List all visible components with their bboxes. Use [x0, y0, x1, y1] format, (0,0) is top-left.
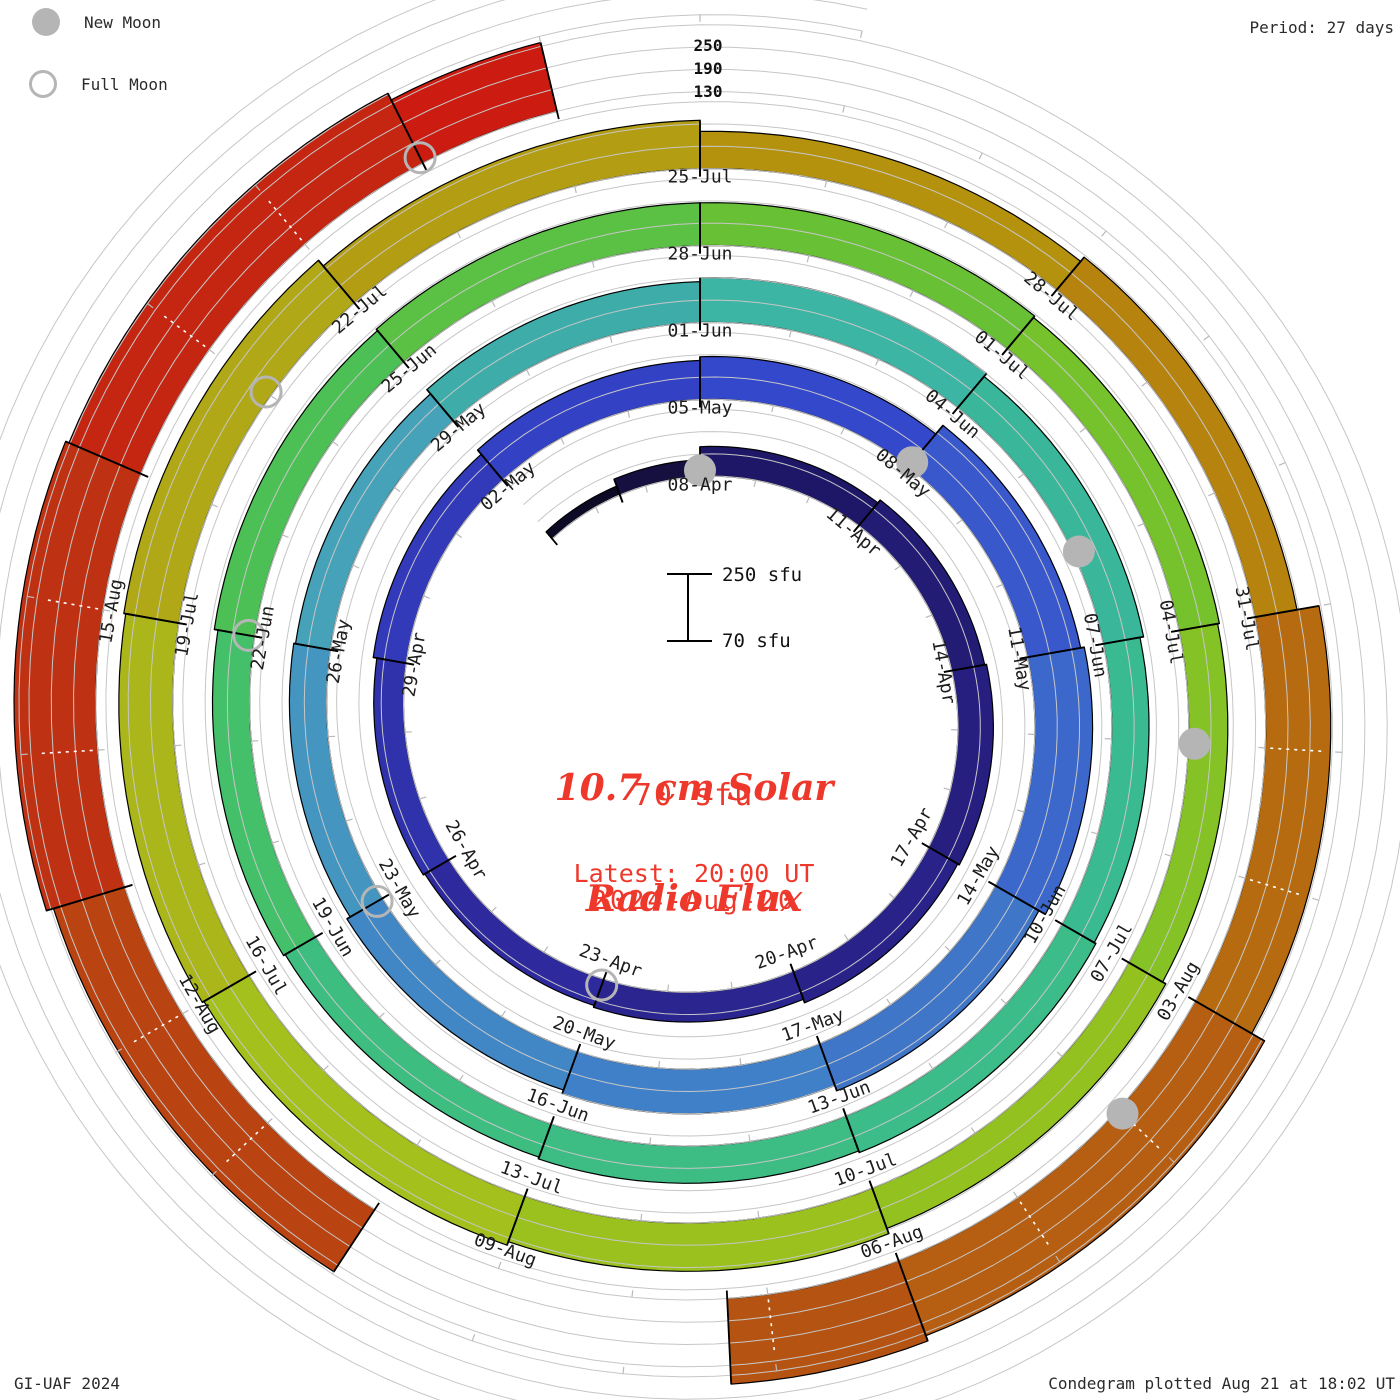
day-tick — [1239, 876, 1246, 878]
day-tick — [1018, 474, 1024, 478]
new-moon-marker: New Moon 06-Jun — [1063, 536, 1095, 568]
day-tick — [333, 442, 339, 446]
day-tick — [394, 488, 400, 492]
day-tick — [435, 960, 440, 965]
day-tick — [491, 907, 496, 912]
day-tick — [1014, 1192, 1018, 1198]
day-tick — [772, 405, 774, 412]
legend-full-moon: Full Moon — [29, 70, 168, 98]
day-tick — [910, 290, 913, 296]
day-tick — [198, 863, 205, 865]
day-tick — [526, 369, 529, 375]
day-tick — [650, 1138, 651, 1145]
day-tick — [544, 947, 548, 953]
date-label: 28-Jun — [667, 244, 732, 265]
day-tick — [646, 486, 648, 493]
day-tick — [957, 520, 963, 524]
chart-title: 10.7 cm Solar Radio Flux — [555, 696, 834, 992]
date-label: 05-May — [667, 398, 732, 419]
day-tick — [807, 256, 809, 263]
radial-axis-label-250: 250 — [694, 36, 723, 55]
day-tick — [1208, 493, 1215, 496]
day-tick — [596, 507, 599, 513]
new-moon-marker: New Moon 05-Jul — [1179, 728, 1211, 760]
legend-new-moon: New Moon — [32, 8, 161, 36]
day-tick — [379, 1013, 384, 1018]
day-tick — [740, 1058, 741, 1065]
new-moon-marker: New Moon 04-Aug — [1107, 1098, 1139, 1130]
full-moon-icon — [29, 70, 57, 98]
day-tick — [845, 935, 849, 941]
day-tick — [623, 1367, 624, 1374]
radial-axis-label-130: 130 — [694, 82, 723, 101]
day-tick — [1312, 898, 1319, 900]
day-tick — [592, 261, 594, 268]
day-tick — [971, 1128, 975, 1134]
new-moon-icon — [32, 8, 60, 36]
flux-bar-segment: 13-Jun: 170 sfu — [538, 1116, 858, 1183]
day-tick — [887, 999, 891, 1005]
day-tick — [841, 428, 844, 434]
flux-scalebar — [667, 574, 712, 641]
day-tick — [790, 330, 792, 337]
day-tick — [346, 819, 353, 821]
day-tick — [1165, 854, 1172, 856]
flux-bar-segment: 05-Apr: 95 sfu — [546, 486, 620, 539]
day-tick — [659, 1061, 660, 1068]
day-tick — [945, 222, 948, 228]
day-tick — [807, 497, 810, 503]
day-tick — [1091, 832, 1098, 834]
day-tick — [754, 480, 756, 487]
plotted-timestamp: Condegram plotted Aug 21 at 18:02 UT — [1048, 1374, 1395, 1393]
day-tick — [182, 1010, 188, 1014]
day-tick — [305, 244, 310, 249]
day-tick — [423, 596, 429, 599]
day-tick — [21, 754, 28, 755]
day-tick — [502, 1011, 506, 1017]
day-tick — [271, 396, 277, 400]
flux-bar-segment: 19-Aug: 260 sfu — [391, 43, 557, 164]
flux-bar-segment: 10-Jul: 200 sfu — [508, 1188, 889, 1271]
day-tick — [1138, 523, 1144, 526]
day-tick — [417, 1139, 421, 1145]
day-tick — [457, 232, 460, 238]
day-tick — [561, 438, 564, 444]
day-tick — [499, 1262, 501, 1269]
day-tick — [749, 1135, 750, 1142]
date-label: 08-Apr — [667, 474, 732, 495]
day-tick — [492, 301, 495, 307]
day-tick — [1204, 336, 1210, 340]
scalebar-max-label: 250 sfu — [722, 564, 802, 586]
day-tick — [272, 841, 279, 843]
day-tick — [1080, 428, 1086, 432]
credit-label: GI-UAF 2024 — [14, 1374, 120, 1393]
day-tick — [895, 566, 901, 570]
date-label: 25-Jul — [667, 167, 732, 188]
day-tick — [211, 504, 217, 507]
day-tick — [1102, 231, 1107, 236]
latest-date-label: 2024-Aug-20 — [591, 886, 796, 916]
latest-time-label: Latest: 20:00 UT — [574, 859, 815, 888]
day-tick — [456, 533, 462, 537]
day-tick — [472, 1334, 474, 1341]
flux-bar-segment: 11-May: 225 sfu — [995, 647, 1092, 914]
day-tick — [876, 359, 879, 365]
condegram-page: 05-Apr: 95 sfu06-Apr: 115 sfu08-Apr: 150… — [0, 0, 1400, 1400]
day-tick — [996, 584, 1002, 587]
day-tick — [889, 894, 894, 899]
day-tick — [575, 186, 577, 193]
legend-full-moon-label: Full Moon — [81, 75, 168, 94]
day-tick — [1017, 810, 1024, 812]
day-tick — [945, 946, 950, 951]
day-tick — [758, 1211, 759, 1218]
legend-new-moon-label: New Moon — [84, 13, 161, 32]
day-tick — [767, 1288, 768, 1295]
day-tick — [929, 1063, 933, 1069]
day-tick — [944, 788, 951, 790]
day-tick — [641, 1214, 642, 1221]
day-tick — [323, 1066, 328, 1071]
day-tick — [628, 411, 630, 418]
radial-axis-label-190: 190 — [694, 59, 723, 78]
day-tick — [353, 565, 360, 568]
day-tick — [843, 106, 845, 113]
day-tick — [459, 1075, 463, 1081]
day-tick — [632, 1290, 633, 1297]
date-label: 01-Jun — [667, 321, 732, 342]
flux-bar-segment: 17-May: 190 sfu — [562, 1044, 835, 1114]
day-tick — [1324, 604, 1331, 605]
day-tick — [825, 181, 827, 188]
day-tick — [861, 31, 863, 38]
period-label: Period: 27 days — [1250, 18, 1395, 37]
day-tick — [979, 153, 982, 159]
day-tick — [1142, 382, 1148, 386]
day-tick — [1057, 1052, 1062, 1057]
day-tick — [1279, 463, 1285, 466]
day-tick — [539, 36, 541, 43]
day-tick — [420, 797, 427, 799]
flux-bar-segment: 11-Apr: 160 sfu — [859, 500, 985, 670]
scalebar-min-label: 70 sfu — [722, 630, 791, 652]
day-tick — [282, 535, 288, 538]
current-flux-value: 70 sfu — [634, 778, 754, 813]
day-tick — [209, 350, 215, 354]
day-tick — [1001, 999, 1006, 1004]
day-tick — [610, 336, 612, 343]
day-tick — [267, 1118, 272, 1123]
day-tick — [926, 615, 932, 618]
